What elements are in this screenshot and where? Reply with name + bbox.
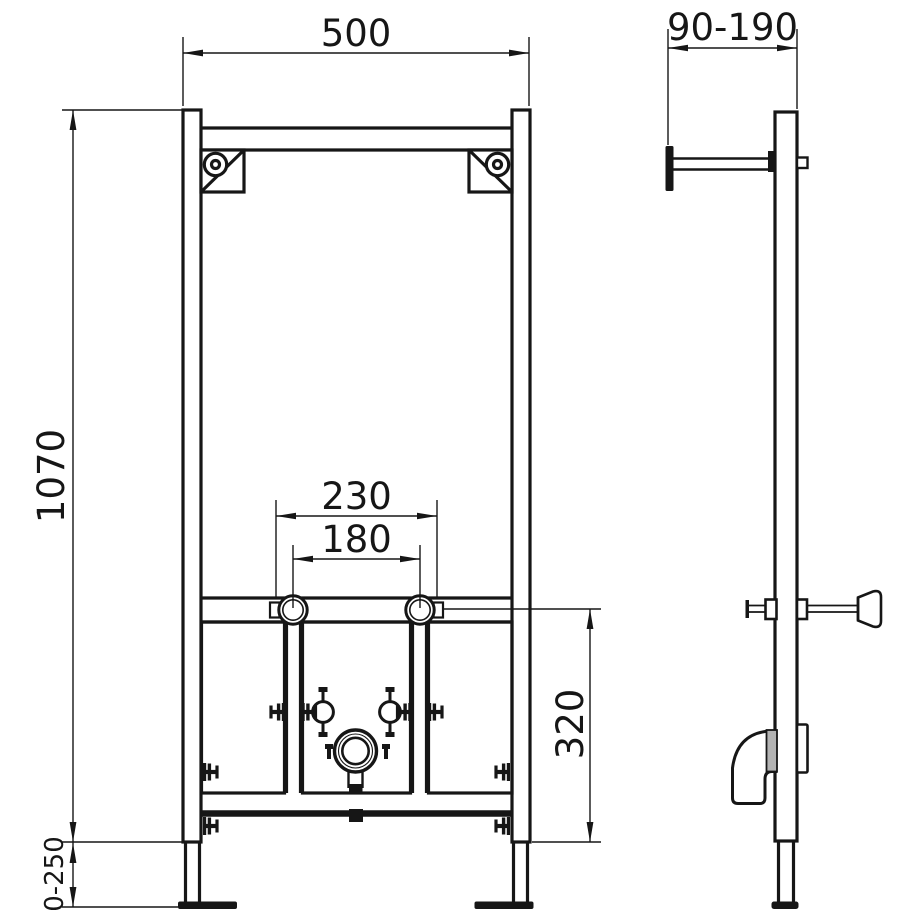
wall-plate	[666, 146, 674, 191]
dim-frame-height-label: 1070	[30, 429, 73, 523]
arrowhead	[70, 822, 77, 842]
fixing-rod-nut-left	[766, 600, 777, 620]
installation-frame-drawing: 500 90-190 1070 0-250 230	[0, 0, 920, 920]
side-post	[775, 112, 797, 841]
adjuster-bolt	[495, 817, 511, 835]
arrowhead	[183, 50, 203, 57]
right-foot-plate	[475, 902, 534, 910]
arrowhead	[70, 843, 77, 863]
arrowhead	[509, 50, 529, 57]
technical-drawing-canvas: 500 90-190 1070 0-250 230	[0, 0, 920, 920]
dim-fixing-outer-label: 230	[321, 475, 392, 518]
elbow-socket	[767, 730, 778, 772]
wall-bracket	[666, 146, 778, 191]
adjuster-bolt	[495, 763, 511, 781]
arrowhead	[293, 556, 313, 563]
top-rail	[201, 128, 512, 150]
legs-and-feet	[178, 842, 534, 909]
left-foot-plate	[178, 902, 237, 910]
arrowhead	[400, 556, 420, 563]
drain-outlet-foot	[349, 784, 363, 792]
fixing-rod-end-cap	[746, 600, 750, 618]
arrowhead	[587, 609, 594, 629]
adjuster-bolt	[396, 703, 412, 721]
fixing-rod-nut-right	[797, 600, 807, 620]
front-right-post	[512, 110, 530, 842]
drain-screw-left-stem	[327, 744, 331, 759]
dim-frame-width-label: 500	[321, 12, 392, 55]
dim-outlet-height-label: 320	[549, 689, 592, 760]
dim-leg-extension-label: 0-250	[40, 836, 70, 912]
water-connection-right	[406, 596, 443, 624]
side-rear-bracket	[797, 725, 808, 773]
adjuster-bolt	[302, 703, 318, 721]
arrowhead	[70, 887, 77, 907]
corner-bracket-left	[201, 150, 244, 192]
bottom-rail-fixing-block	[349, 809, 363, 822]
dimension-leg-extension: 0-250	[40, 836, 178, 912]
arrowhead	[417, 513, 437, 520]
dimension-frame-width: 500	[183, 12, 529, 106]
wall-rail-stub	[797, 158, 808, 169]
drain-assembly	[325, 730, 390, 792]
middle-rail	[201, 598, 512, 622]
dimension-frame-height: 1070	[30, 110, 183, 842]
dim-fixing-inner-label: 180	[321, 518, 392, 561]
adjuster-bolt	[270, 703, 286, 721]
water-connection-left	[270, 596, 307, 624]
front-left-post	[183, 110, 201, 842]
arrowhead	[70, 110, 77, 130]
adjuster-bolt	[203, 817, 219, 835]
drain-pipe-inner-ring	[342, 738, 368, 764]
side-foot-plate	[772, 902, 799, 910]
drain-elbow	[733, 730, 778, 804]
drain-screw-right-stem	[384, 744, 388, 759]
arrowhead	[276, 513, 296, 520]
fixing-cone-anchor	[858, 591, 881, 627]
fixing-rod-assembly	[746, 591, 882, 627]
dimension-fixing-inner: 180	[293, 518, 420, 608]
side-leg-and-foot	[772, 841, 799, 909]
corner-bracket-right	[469, 150, 512, 192]
adjuster-bolt	[428, 703, 444, 721]
side-view	[666, 112, 882, 909]
dim-wall-bracket-depth-label: 90-190	[667, 6, 798, 49]
arrowhead	[587, 822, 594, 842]
adjuster-bolt	[203, 763, 219, 781]
